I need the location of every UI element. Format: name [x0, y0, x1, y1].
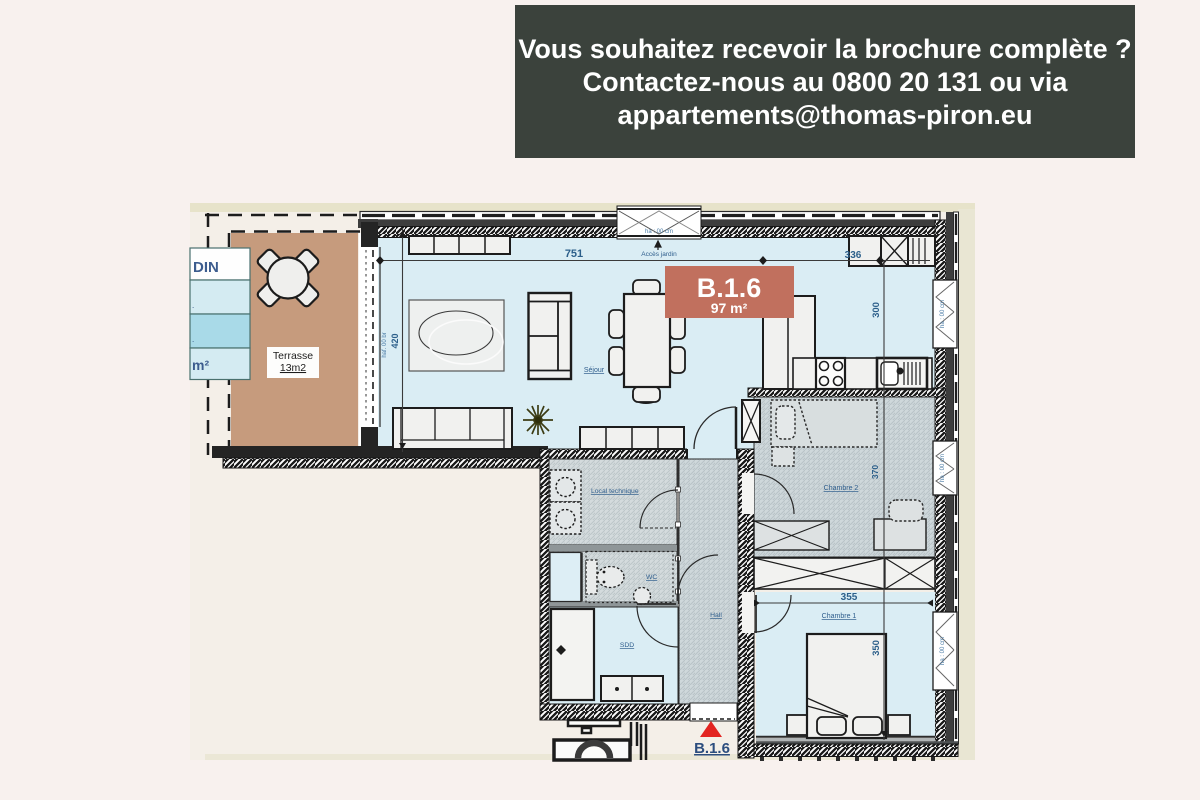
- svg-text:m²: m²: [192, 357, 209, 373]
- svg-text:420: 420: [390, 333, 400, 348]
- svg-text:B.1.6: B.1.6: [697, 273, 762, 303]
- svg-text:97 m²: 97 m²: [711, 300, 748, 316]
- svg-text:751: 751: [565, 248, 583, 260]
- svg-text:B.1.6: B.1.6: [694, 740, 730, 757]
- svg-text:Local technique: Local technique: [591, 488, 639, 495]
- svg-text:13m2: 13m2: [280, 362, 306, 374]
- svg-text:DIN: DIN: [193, 259, 219, 276]
- svg-text:ha : 00 cm: ha : 00 cm: [645, 229, 673, 235]
- svg-text:Chambre 2: Chambre 2: [824, 485, 859, 492]
- svg-text:300: 300: [871, 302, 882, 318]
- svg-text:WC: WC: [646, 574, 657, 581]
- svg-text:Terrasse: Terrasse: [273, 350, 313, 362]
- svg-text:ha : 00 cm: ha : 00 cm: [940, 637, 946, 665]
- svg-text:haf. 00 br: haf. 00 br: [382, 332, 388, 357]
- svg-text:Séjour: Séjour: [584, 367, 605, 374]
- svg-text:.: .: [192, 335, 194, 344]
- svg-text:ha : 00 cm: ha : 00 cm: [940, 300, 946, 328]
- svg-text:ha : 00 cm: ha : 00 cm: [940, 454, 946, 482]
- svg-text:.: .: [192, 301, 194, 310]
- svg-text:Chambre 1: Chambre 1: [822, 613, 857, 620]
- svg-text:Hall: Hall: [710, 612, 722, 619]
- svg-text:355: 355: [841, 592, 858, 603]
- svg-text:Accès jardin: Accès jardin: [641, 251, 677, 258]
- svg-text:SDD: SDD: [620, 642, 634, 649]
- svg-text:336: 336: [845, 250, 862, 261]
- svg-text:350: 350: [871, 640, 882, 656]
- svg-text:370: 370: [870, 465, 880, 479]
